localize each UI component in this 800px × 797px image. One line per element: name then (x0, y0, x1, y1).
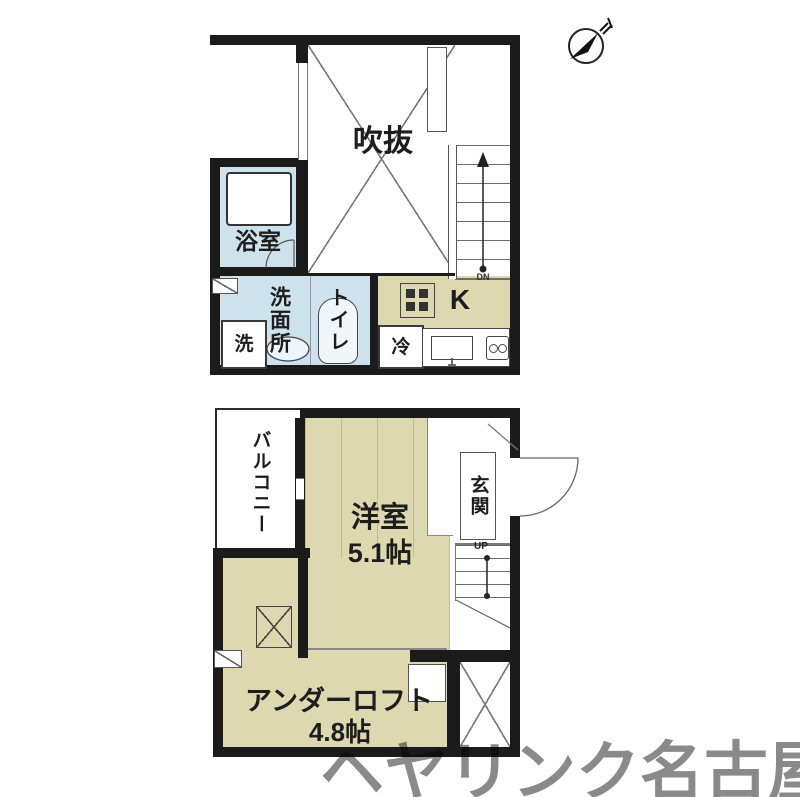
stairs-down-label: DN (472, 272, 494, 282)
western-room-size-label: 5.1帖 (325, 538, 435, 568)
underloft-closet-box (256, 606, 292, 648)
washing-machine-box: 洗 (221, 320, 267, 369)
entrance-door-arc-icon (516, 452, 586, 522)
under-loft-size-label: 4.8帖 (285, 718, 395, 746)
bathroom-wall-top (210, 158, 306, 167)
washer-label: 洗 (233, 335, 254, 354)
void-left-window (298, 63, 308, 160)
stairs-up-label: UP (468, 541, 494, 553)
washroom-toilet-divider (310, 276, 311, 365)
lower-wall-top (300, 408, 520, 418)
refrigerator-box: 冷 (378, 325, 424, 369)
entrance-box: 玄関 (460, 452, 496, 540)
entrance-label: 玄関 (469, 475, 488, 517)
upper-stairs-arrow-icon (460, 150, 510, 290)
refrigerator-label: 冷 (390, 338, 411, 357)
western-room-label: 洋室 (325, 502, 435, 534)
void-duct (427, 47, 447, 132)
stairs-break-diagonal-icon (455, 598, 511, 632)
balcony-window (296, 478, 304, 500)
stove-burners-icon (486, 336, 509, 360)
upper-stairs-rail (448, 145, 457, 279)
lower-stairs-arrow-icon (470, 548, 504, 604)
washroom-label: 洗面所 (264, 278, 294, 362)
bathroom-label: 浴室 (220, 227, 296, 255)
upper-wall-top (210, 35, 520, 45)
lower-wall-right-lower (510, 516, 520, 757)
void-left-wall-stub (296, 45, 308, 63)
shoe-cabinet-diagonal-icon (486, 420, 520, 454)
void-top-wall (410, 650, 520, 662)
void-label: 吹抜 (318, 125, 448, 159)
underloft-left-wall (298, 555, 308, 658)
void-under-stairs (460, 662, 510, 747)
upper-wall-right (510, 35, 520, 375)
toilet-label: トイレ (324, 280, 350, 360)
compass-north-icon (550, 12, 630, 74)
kitchen-faucet-icon (446, 356, 458, 368)
toilet-kitchen-wall (370, 276, 378, 365)
kitchen-label: K (444, 282, 476, 318)
void-left-wall-lower (447, 650, 460, 757)
balcony-label: バルコニー (246, 418, 274, 546)
lower-wall-bottom (213, 747, 520, 757)
under-loft-label: アンダーロフト (230, 686, 448, 716)
bathtub (226, 172, 292, 226)
washroom-left-window (212, 278, 238, 294)
water-heater-icon (400, 283, 435, 318)
floorplan-image: DN 吹抜 浴室 洗 洗面所 トイレ K 冷 バルコニー (0, 0, 800, 797)
underloft-left-window (214, 650, 242, 668)
void-bottom-line (308, 273, 455, 276)
